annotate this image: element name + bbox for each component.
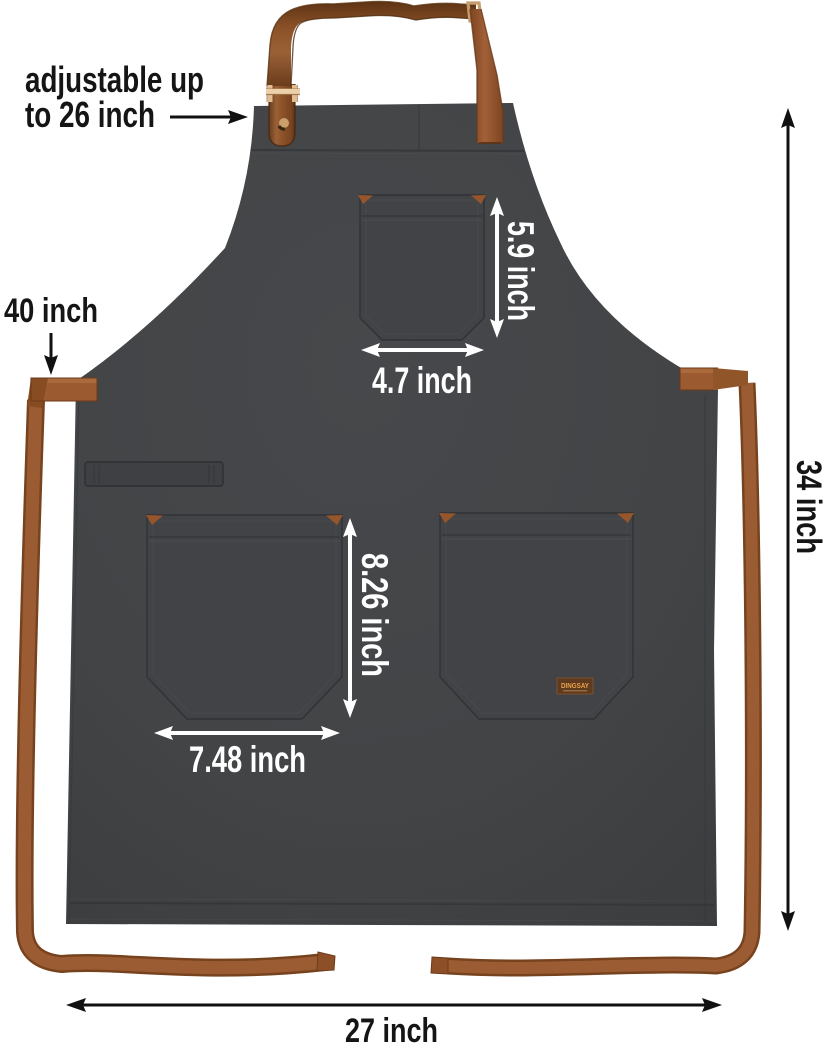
svg-text:DINGSAY: DINGSAY	[561, 683, 589, 690]
svg-text:4.7 inch: 4.7 inch	[372, 360, 472, 401]
svg-text:5.9 inch: 5.9 inch	[500, 221, 541, 321]
svg-text:8.26 inch: 8.26 inch	[354, 553, 395, 677]
svg-text:34 inch: 34 inch	[789, 460, 827, 554]
svg-text:to 26 inch: to 26 inch	[25, 94, 155, 135]
svg-text:40 inch: 40 inch	[4, 292, 98, 330]
svg-text:7.48 inch: 7.48 inch	[189, 739, 306, 780]
svg-text:27 inch: 27 inch	[345, 1012, 438, 1047]
